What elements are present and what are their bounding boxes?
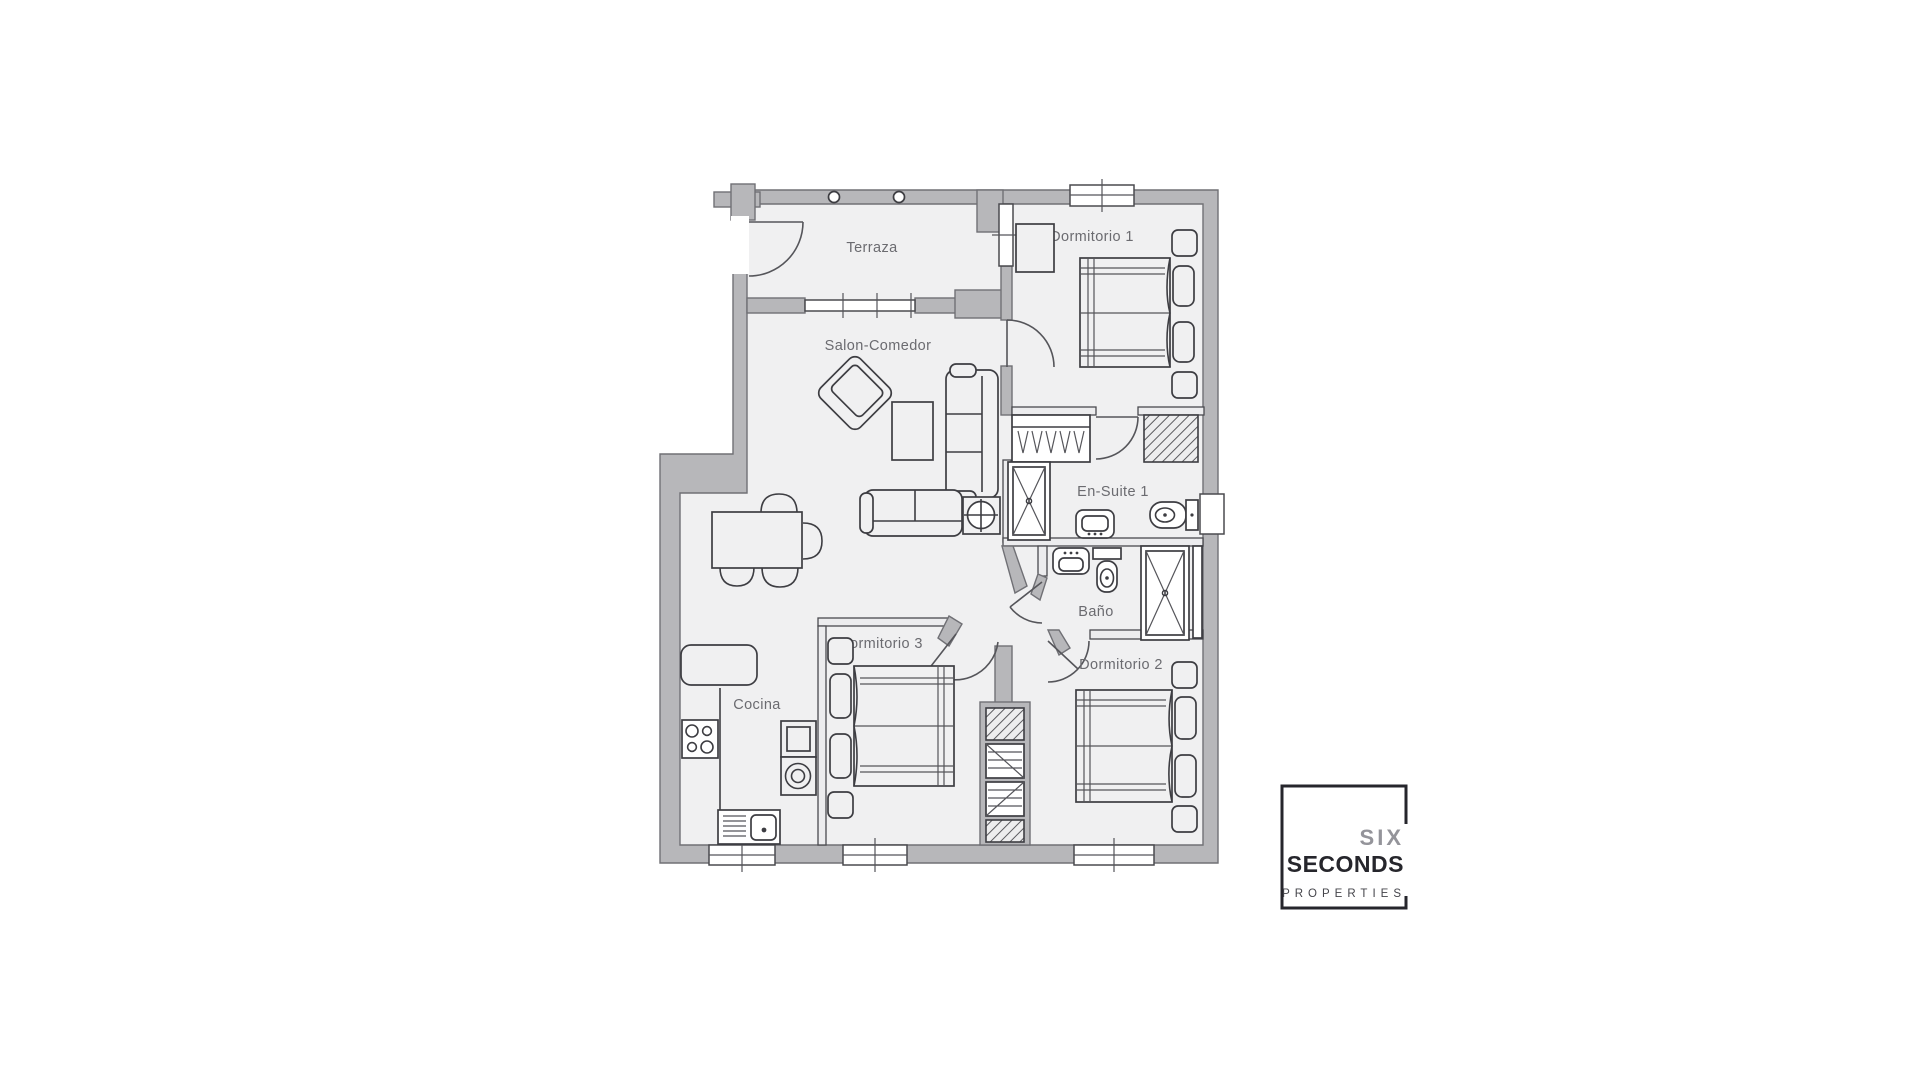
room-terraza: Terraza <box>846 240 898 256</box>
washing-machine-icon <box>781 757 816 795</box>
dresser-icon <box>1016 224 1054 272</box>
coffee-table-icon <box>892 402 933 460</box>
wardrobe-icon <box>1012 415 1090 462</box>
toilet-icon <box>1093 548 1121 592</box>
facade-vent-icon <box>894 192 905 203</box>
sofa-icon <box>946 364 998 504</box>
facade-vent-icon <box>829 192 840 203</box>
shower-icon <box>1008 462 1050 540</box>
closet-hatched-icon <box>1144 415 1198 462</box>
fridge-icon <box>781 721 816 757</box>
floor-plan: Terraza Salon-Comedor <box>0 0 1920 1080</box>
room-label-salon-comedor: Salon-Comedor <box>825 338 932 354</box>
ensuite-window-icon <box>1200 494 1224 534</box>
terrace-door-opening <box>731 216 749 274</box>
sink-icon <box>1076 510 1114 538</box>
room-label-dormitorio-2: Dormitorio 2 <box>1079 657 1163 673</box>
wardrobe-column-icon <box>986 708 1024 842</box>
loveseat-icon <box>860 490 962 536</box>
shower-icon <box>1141 546 1189 640</box>
room-label-dormitorio-1: Dormitorio 1 <box>1050 229 1134 245</box>
side-table-icon <box>963 497 1000 534</box>
logo-text-seconds: SECONDS <box>1287 851 1404 877</box>
room-label-terraza: Terraza <box>846 240 898 256</box>
room-label-cocina: Cocina <box>733 697 781 713</box>
logo-text-six: SIX <box>1360 825 1404 850</box>
toilet-icon <box>1150 500 1198 530</box>
sink-icon <box>1053 548 1089 574</box>
room-label-bano: Baño <box>1078 604 1113 620</box>
room-label-en-suite-1: En-Suite 1 <box>1077 484 1149 500</box>
logo-six-seconds-properties: SIX SECONDS PROPERTIES <box>1282 786 1406 908</box>
stove-icon <box>682 720 718 758</box>
shower-screen-icon <box>1193 546 1202 638</box>
logo-text-properties: PROPERTIES <box>1282 888 1406 900</box>
facade-pillar-cap-icon <box>731 184 755 220</box>
terrace-window-icon <box>805 300 915 311</box>
kitchen-sink-icon <box>718 810 780 844</box>
page: Terraza Salon-Comedor <box>0 0 1920 1080</box>
kitchen-cabinet-icon <box>681 645 757 685</box>
